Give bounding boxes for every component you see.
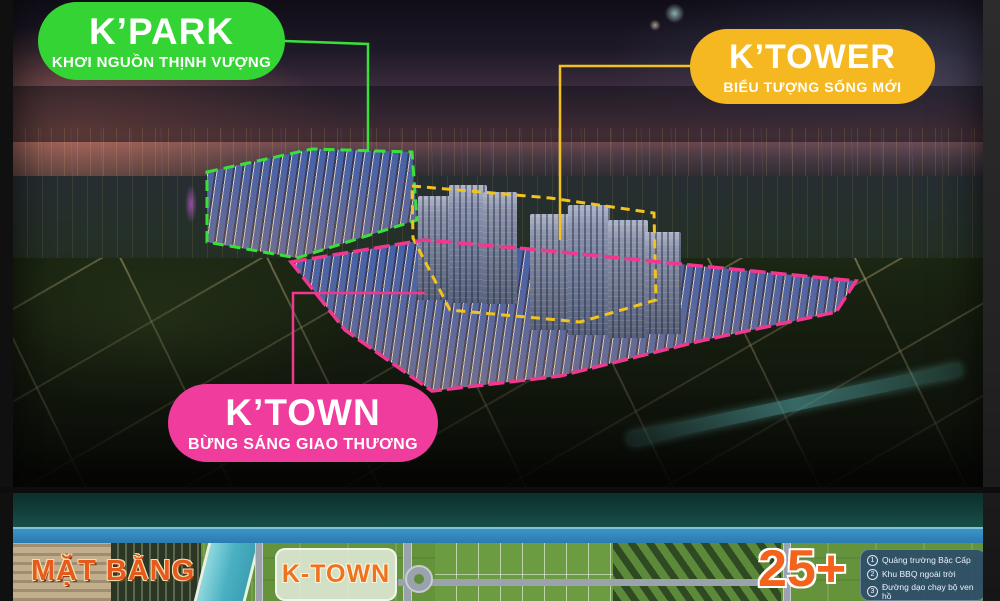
legend-number: 1 — [867, 555, 878, 566]
kpark-zone-outline — [207, 149, 417, 258]
kpark-leader-line — [284, 41, 368, 152]
ktown-label-pill: K’TOWN BỪNG SÁNG GIAO THƯƠNG — [168, 384, 438, 462]
ktown-map-label: K-TOWN — [282, 560, 390, 589]
legend-item: 1 Quảng trường Bậc Cấp — [867, 555, 979, 566]
masterplan-strip: K-TOWN MẶT BẰNG 25+ 1 Quảng trường Bậc C… — [13, 543, 983, 601]
kpark-title: K’PARK — [89, 11, 234, 54]
amenity-legend-panel: 1 Quảng trường Bậc Cấp 2 Khu BBQ ngoài t… — [860, 549, 983, 601]
kpark-label-pill: K’PARK KHƠI NGUỒN THỊNH VƯỢNG — [38, 2, 285, 80]
ktower-label-pill: K’TOWER BIỂU TƯỢNG SỐNG MỚI — [690, 29, 935, 104]
plan-plots — [435, 543, 615, 601]
ktown-map-panel: K-TOWN — [275, 548, 397, 601]
promo-image-root: K’PARK KHƠI NGUỒN THỊNH VƯỢNG K’TOWER BI… — [0, 0, 1000, 601]
plan-road — [255, 543, 263, 601]
ktower-title: K’TOWER — [729, 38, 896, 77]
legend-number: 2 — [867, 569, 878, 580]
left-letterbox — [0, 0, 13, 601]
legend-label: Đường dạo chạy bộ ven hồ — [882, 583, 979, 600]
kpark-subtitle: KHƠI NGUỒN THỊNH VƯỢNG — [52, 54, 271, 71]
masterplan-title: MẶT BẰNG — [31, 555, 195, 588]
ktower-subtitle: BIỂU TƯỢNG SỐNG MỚI — [723, 79, 901, 95]
legend-item: 3 Đường dạo chạy bộ ven hồ — [867, 583, 979, 600]
river-strip — [13, 527, 983, 543]
ktown-subtitle: BỪNG SÁNG GIAO THƯƠNG — [188, 436, 418, 454]
legend-number: 3 — [867, 586, 878, 597]
ktown-zone-outline — [291, 240, 856, 391]
plan-road — [398, 579, 778, 586]
ktown-title: K’TOWN — [225, 392, 380, 435]
ktower-leader-line — [560, 66, 692, 240]
right-letterbox — [983, 0, 1000, 601]
plan-forest — [613, 543, 781, 601]
aerial-photo: K’PARK KHƠI NGUỒN THỊNH VƯỢNG K’TOWER BI… — [13, 0, 983, 487]
legend-label: Khu BBQ ngoài trời — [882, 570, 956, 579]
plan-roundabout — [405, 565, 433, 593]
ktower-zone-outline — [412, 186, 656, 322]
teal-banner-strip — [13, 493, 983, 527]
legend-item: 2 Khu BBQ ngoài trời — [867, 569, 979, 580]
amenity-count: 25+ — [758, 543, 846, 599]
legend-label: Quảng trường Bậc Cấp — [882, 556, 971, 565]
